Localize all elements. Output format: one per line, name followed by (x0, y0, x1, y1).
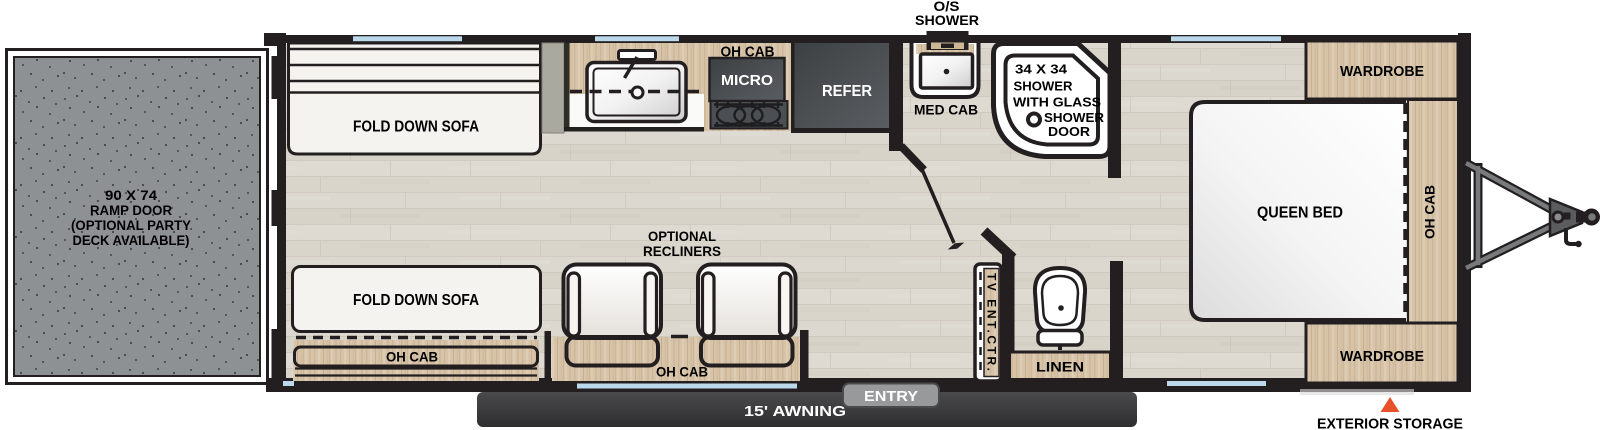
svg-text:OPTIONAL: OPTIONAL (648, 228, 716, 244)
svg-text:QUEEN BED: QUEEN BED (1257, 205, 1343, 222)
svg-text:34 X 34: 34 X 34 (1015, 62, 1068, 77)
svg-text:WARDROBE: WARDROBE (1340, 349, 1424, 365)
svg-text:FOLD DOWN SOFA: FOLD DOWN SOFA (353, 292, 479, 309)
svg-text:SHOWER: SHOWER (915, 13, 979, 28)
svg-text:WITH GLASS: WITH GLASS (1013, 95, 1101, 110)
svg-text:RAMP DOOR: RAMP DOOR (90, 203, 172, 218)
svg-text:FOLD DOWN SOFA: FOLD DOWN SOFA (353, 119, 479, 136)
svg-text:DOOR: DOOR (1048, 124, 1091, 139)
svg-text:EXTERIOR STORAGE: EXTERIOR STORAGE (1317, 417, 1463, 430)
svg-text:OH CAB: OH CAB (386, 350, 438, 365)
svg-text:ENTRY: ENTRY (864, 389, 918, 405)
svg-text:TV ENT.CTR.: TV ENT.CTR. (985, 273, 999, 371)
svg-text:15' AWNING: 15' AWNING (744, 403, 846, 420)
svg-text:WARDROBE: WARDROBE (1340, 64, 1424, 80)
svg-text:DECK AVAILABLE): DECK AVAILABLE) (73, 233, 190, 248)
svg-text:SHOWER: SHOWER (1044, 110, 1105, 125)
svg-text:(OPTIONAL PARTY: (OPTIONAL PARTY (71, 218, 191, 233)
svg-text:RECLINERS: RECLINERS (643, 243, 721, 259)
svg-text:O/S: O/S (934, 0, 960, 14)
svg-text:OH CAB: OH CAB (656, 365, 708, 380)
svg-text:MICRO: MICRO (721, 72, 773, 89)
svg-text:OH CAB: OH CAB (1423, 185, 1438, 239)
svg-text:MED CAB: MED CAB (914, 102, 978, 118)
svg-text:LINEN: LINEN (1036, 360, 1084, 375)
svg-text:REFER: REFER (822, 83, 872, 100)
svg-text:SHOWER: SHOWER (1014, 79, 1074, 94)
svg-text:90 X 74: 90 X 74 (105, 188, 158, 203)
